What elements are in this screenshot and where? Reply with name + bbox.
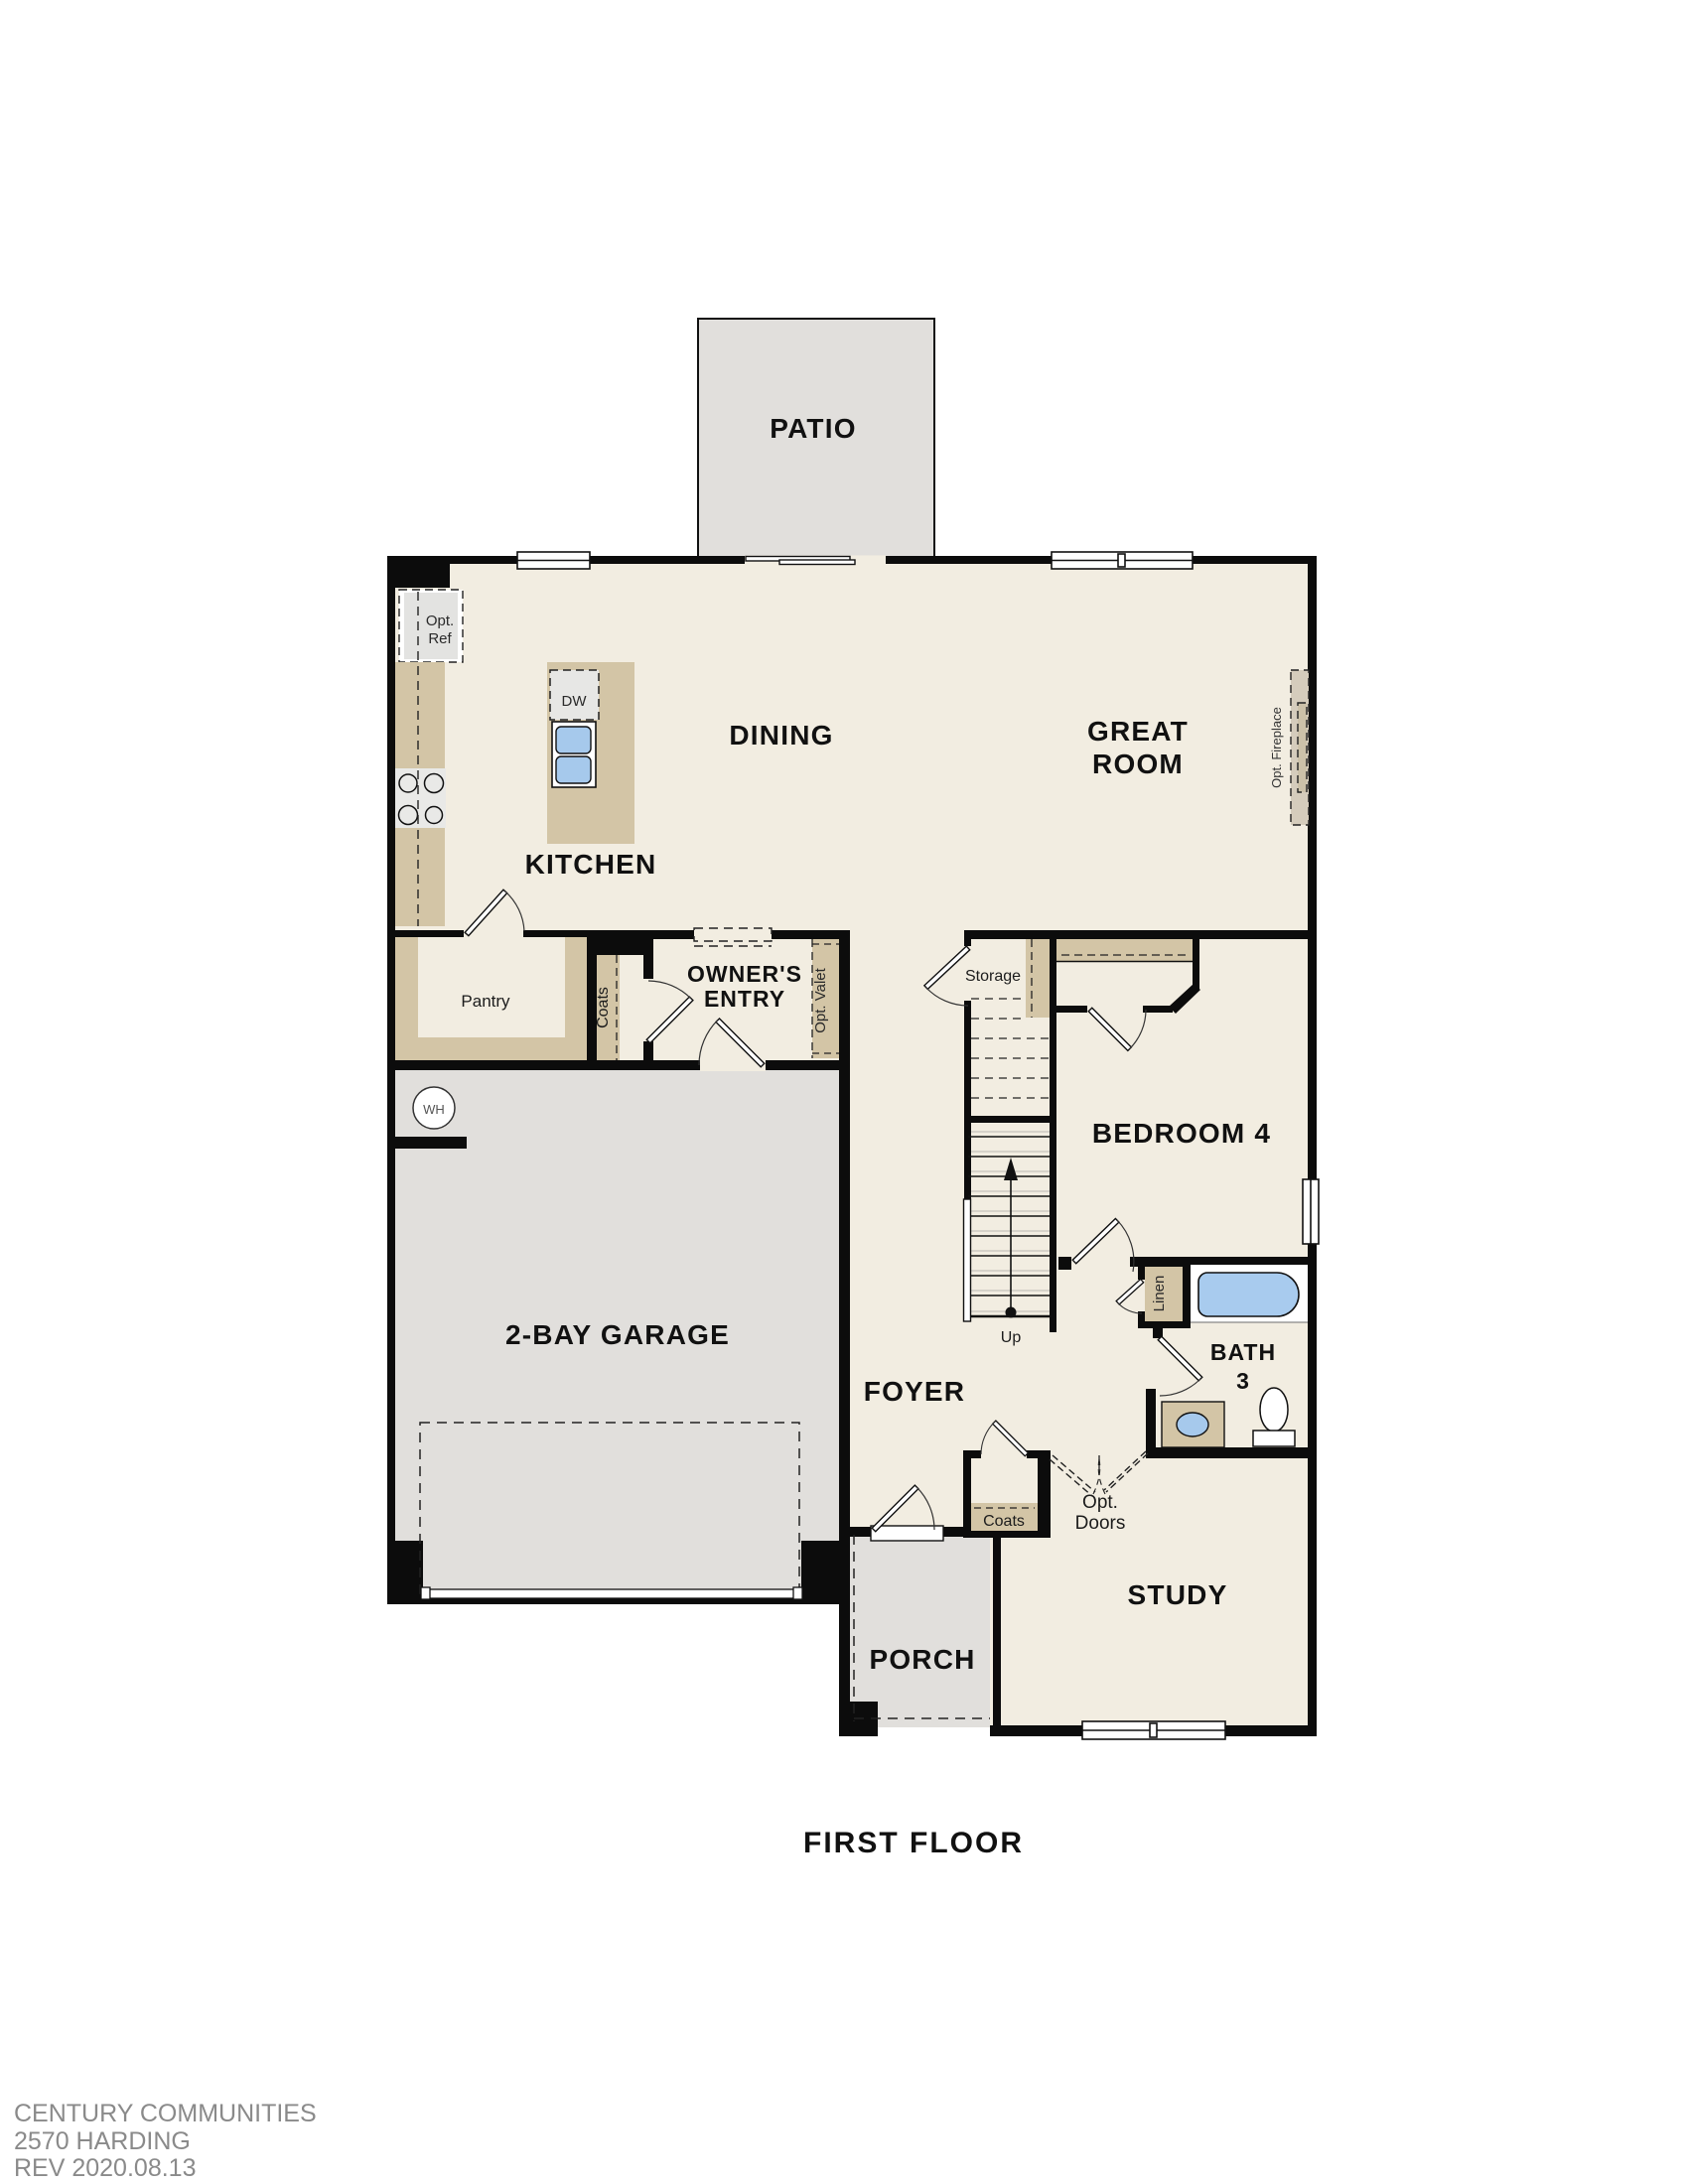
svg-text:Pantry: Pantry bbox=[461, 992, 510, 1011]
svg-text:Storage: Storage bbox=[965, 968, 1021, 985]
svg-text:2-BAY GARAGE: 2-BAY GARAGE bbox=[505, 1319, 730, 1350]
svg-text:REV 2020.08.13: REV 2020.08.13 bbox=[14, 2154, 196, 2182]
svg-text:3: 3 bbox=[1236, 1368, 1250, 1394]
svg-text:FIRST FLOOR: FIRST FLOOR bbox=[803, 1827, 1024, 1859]
svg-text:DINING: DINING bbox=[729, 720, 833, 751]
svg-text:GREAT: GREAT bbox=[1087, 716, 1189, 747]
svg-text:BEDROOM 4: BEDROOM 4 bbox=[1092, 1118, 1271, 1149]
svg-text:Up: Up bbox=[1001, 1329, 1022, 1346]
svg-text:BATH: BATH bbox=[1210, 1339, 1276, 1365]
svg-text:WH: WH bbox=[423, 1102, 445, 1117]
svg-text:Coats: Coats bbox=[983, 1513, 1025, 1530]
svg-text:OWNER'S: OWNER'S bbox=[687, 961, 802, 987]
svg-text:KITCHEN: KITCHEN bbox=[525, 849, 657, 880]
svg-text:CENTURY COMMUNITIES: CENTURY COMMUNITIES bbox=[14, 2100, 317, 2127]
svg-text:Ref: Ref bbox=[428, 630, 452, 647]
svg-text:PATIO: PATIO bbox=[770, 413, 856, 444]
svg-text:Opt. Valet: Opt. Valet bbox=[812, 967, 829, 1032]
svg-text:FOYER: FOYER bbox=[864, 1376, 965, 1407]
svg-text:Opt.: Opt. bbox=[426, 613, 454, 629]
svg-text:Opt. Fireplace: Opt. Fireplace bbox=[1269, 707, 1284, 788]
svg-text:STUDY: STUDY bbox=[1128, 1579, 1228, 1610]
svg-text:Coats: Coats bbox=[595, 987, 612, 1028]
svg-text:Opt.: Opt. bbox=[1082, 1492, 1118, 1513]
svg-text:ENTRY: ENTRY bbox=[704, 986, 785, 1012]
svg-text:Linen: Linen bbox=[1151, 1276, 1168, 1312]
svg-text:ROOM: ROOM bbox=[1092, 749, 1184, 779]
svg-text:PORCH: PORCH bbox=[869, 1644, 975, 1675]
svg-text:Doors: Doors bbox=[1075, 1513, 1126, 1534]
svg-text:2570 HARDING: 2570 HARDING bbox=[14, 2127, 191, 2155]
svg-text:DW: DW bbox=[562, 693, 588, 710]
